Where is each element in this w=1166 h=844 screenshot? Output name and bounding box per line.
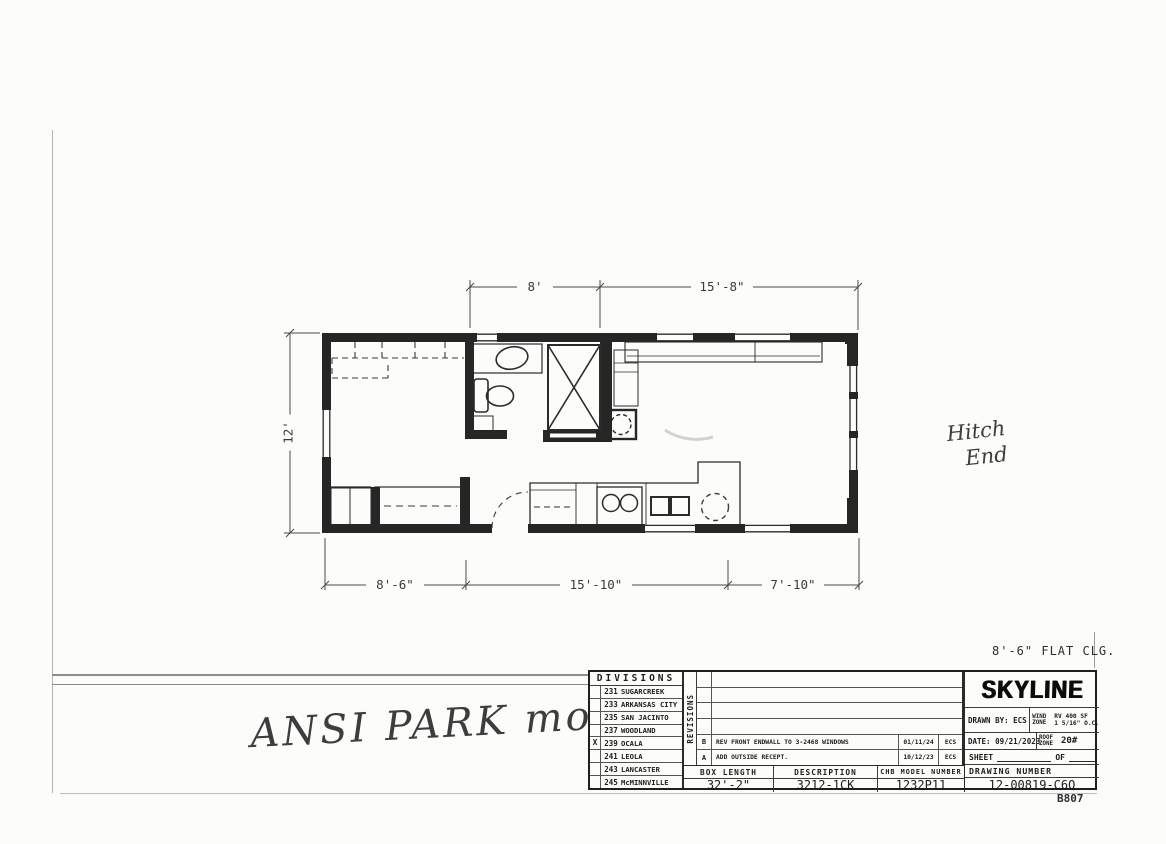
division-name: OCALA <box>621 739 682 748</box>
division-code: 237 <box>601 726 621 735</box>
scan-smudge <box>665 430 713 439</box>
revision-letter: A <box>697 750 712 765</box>
overhead-cabinets <box>332 342 464 378</box>
roof-zone-value: 20# <box>1061 736 1099 747</box>
division-mark <box>590 750 601 762</box>
sheet-row: SHEET OF <box>965 750 1099 765</box>
bed <box>331 477 470 527</box>
date-value: DATE: 09/21/2023 <box>965 733 1037 749</box>
wind-zone-value: RV 400 SF 1 5/16" O.C. <box>1054 713 1099 728</box>
sheet-of-label: OF <box>1055 753 1065 762</box>
division-mark <box>590 686 601 698</box>
revision-row-empty <box>697 703 962 719</box>
division-row: 231SUGARCREEK <box>590 686 682 699</box>
revisions-label: REVISIONS <box>684 672 697 765</box>
division-code: 233 <box>601 700 621 709</box>
sheet-bottom-rule <box>60 793 1097 794</box>
revisions-table: B REV FRONT ENDWALL TO 3-2468 WINDOWS 01… <box>697 672 964 765</box>
revision-description: REV FRONT ENDWALL TO 3-2468 WINDOWS <box>712 739 898 746</box>
revision-row-empty <box>697 688 962 704</box>
drawing-number-header: DRAWING NUMBER <box>965 765 1099 778</box>
closet <box>331 488 371 525</box>
kitchen-sink <box>651 497 689 515</box>
division-row: 245McMINNVILLE <box>590 776 682 788</box>
bathroom-vanity-sink <box>473 344 542 373</box>
division-mark <box>590 763 601 775</box>
revision-row: A ADD OUTSIDE RECEPT. 10/12/23 ECS <box>697 750 962 765</box>
roof-zone-label: ROOF ZONE <box>1037 735 1061 748</box>
division-code: 235 <box>601 713 621 722</box>
division-row: X239OCALA <box>590 737 682 750</box>
revisions-label-text: REVISIONS <box>686 694 695 744</box>
skyline-logo: SKYLINE <box>980 675 1083 705</box>
division-row: 237WOODLAND <box>590 725 682 738</box>
range <box>597 487 642 525</box>
sheet-left-border <box>52 130 53 793</box>
scanned-drawing-sheet: 8' 15'-8" 12' 8'-6" 15'-10" 7'-10" Hitch… <box>0 0 1166 844</box>
revision-row: B REV FRONT ENDWALL TO 3-2468 WINDOWS 01… <box>697 735 962 751</box>
division-code: 245 <box>601 778 621 787</box>
revision-row-empty <box>697 719 962 735</box>
wind-zone-value-2: 1 5/16" O.C. <box>1054 720 1099 727</box>
revision-date: 10/12/23 <box>898 750 938 765</box>
spec-band: BOX LENGTH DESCRIPTION CHB MODEL NUMBER … <box>684 765 964 792</box>
division-mark <box>590 712 601 724</box>
box-length-header: BOX LENGTH <box>684 766 774 778</box>
entry-door-arc <box>492 492 528 528</box>
division-row: 243LANCASTER <box>590 763 682 776</box>
dim-bottom-7-10: 7'-10" <box>762 577 824 592</box>
sofa <box>625 342 822 362</box>
handwritten-hitch-end: Hitch End <box>945 415 1009 473</box>
sheet-rule-lower <box>52 684 589 685</box>
division-mark: X <box>590 737 601 749</box>
page-code: B807 <box>1057 792 1084 805</box>
division-name: SAN JACINTO <box>621 713 682 722</box>
division-name: ARKANSAS CITY <box>621 700 682 709</box>
division-name: SUGARCREEK <box>621 687 682 696</box>
linen-cabinet <box>614 350 638 406</box>
dim-bottom-15-10: 15'-10" <box>560 577 632 592</box>
division-name: McMINNVILLE <box>621 778 682 787</box>
divisions-table: DIVISIONS 231SUGARCREEK 233ARKANSAS CITY… <box>590 672 684 788</box>
division-name: LEOLA <box>621 752 682 761</box>
title-block-right: SKYLINE DRAWN BY: ECS WIND ZONE RV 400 S… <box>964 672 1099 792</box>
divisions-header: DIVISIONS <box>590 672 682 686</box>
refrigerator-circle <box>702 494 729 521</box>
wind-zone-value-1: RV 400 SF <box>1054 713 1099 720</box>
toilet <box>474 379 514 412</box>
revision-description: ADD OUTSIDE RECEPT. <box>712 754 898 761</box>
division-row: 241LEOLA <box>590 750 682 763</box>
revision-date: 01/11/24 <box>898 735 938 750</box>
division-mark <box>590 776 601 788</box>
revision-by: ECS <box>938 750 962 765</box>
division-code: 241 <box>601 752 621 761</box>
hitch-line-2: End <box>964 441 1009 472</box>
dim-top-8ft: 8' <box>517 279 553 294</box>
dim-bottom-8-6: 8'-6" <box>366 577 424 592</box>
kitchen-counter <box>530 462 740 525</box>
date-row: DATE: 09/21/2023 ROOF ZONE 20# <box>965 733 1099 750</box>
division-code: 231 <box>601 687 621 696</box>
box-length-value: 32'-2" <box>684 779 774 792</box>
wind-zone-label: WIND ZONE <box>1030 714 1054 727</box>
sheet-of-blank <box>1069 753 1095 762</box>
dim-top-15-8: 15'-8" <box>691 279 753 294</box>
dim-left-12ft: 12' <box>281 415 296 451</box>
title-block: DIVISIONS 231SUGARCREEK 233ARKANSAS CITY… <box>588 670 1097 790</box>
drawing-number-value: 12-00819-C6Q <box>965 778 1099 792</box>
description-header: DESCRIPTION <box>774 766 878 778</box>
floor-plan <box>270 270 890 600</box>
sheet-blank <box>997 753 1051 762</box>
division-row: 235SAN JACINTO <box>590 712 682 725</box>
shower-threshold <box>550 434 596 438</box>
shower <box>548 345 600 430</box>
revision-row-empty <box>697 672 962 688</box>
division-name: WOODLAND <box>621 726 682 735</box>
company-logo-row: SKYLINE <box>965 672 1099 708</box>
revision-letter: B <box>697 735 712 750</box>
division-name: LANCASTER <box>621 765 682 774</box>
revision-by: ECS <box>938 735 962 750</box>
division-row: 233ARKANSAS CITY <box>590 699 682 712</box>
drawn-by: DRAWN BY: ECS <box>965 708 1030 732</box>
division-code: 243 <box>601 765 621 774</box>
sheet-rule-upper <box>52 674 589 676</box>
description-value: 3212-1CK <box>774 779 878 792</box>
model-number-value: 1232P11 <box>878 779 964 792</box>
model-number-header: CHB MODEL NUMBER <box>878 766 964 778</box>
sheet-label: SHEET <box>969 753 993 762</box>
ceiling-note: 8'-6" FLAT CLG. <box>992 644 1115 658</box>
division-code: 239 <box>601 739 621 748</box>
division-mark <box>590 725 601 737</box>
division-mark <box>590 699 601 711</box>
drawn-by-row: DRAWN BY: ECS WIND ZONE RV 400 SF 1 5/16… <box>965 708 1099 733</box>
